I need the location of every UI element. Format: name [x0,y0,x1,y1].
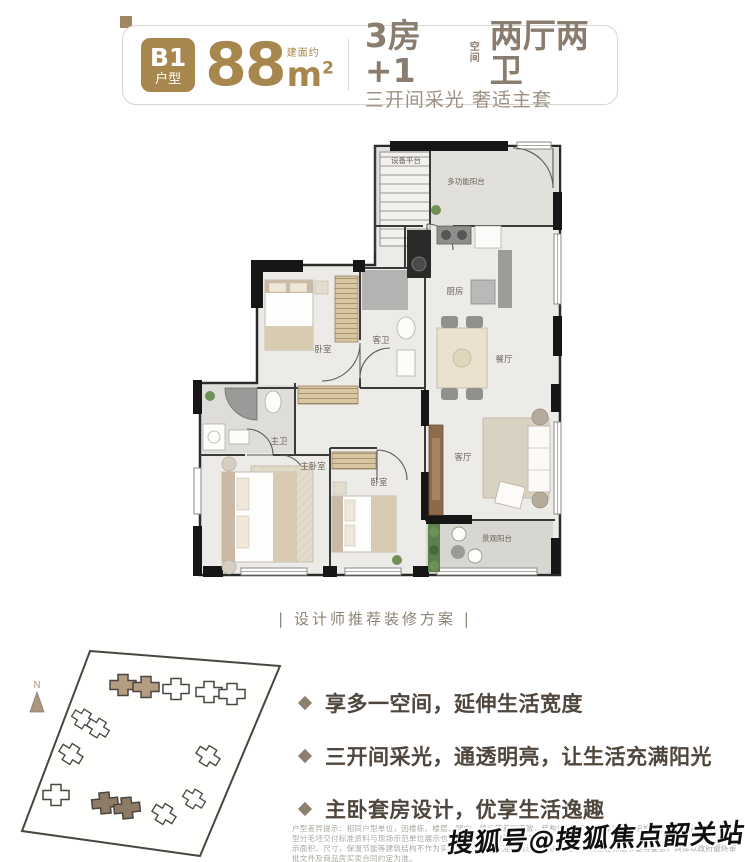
master-bedroom-furniture [222,457,313,574]
room-label-equipment: 设备平台 [391,155,421,165]
header-divider [348,39,349,91]
floor-plan-diagram: 设备平台 多功能阳台 厨房 客卫 卧室 餐厅 主卫 主卧室 卧室 客厅 景观阳台 [185,138,665,618]
selling-point-text: 享多一空间，延伸生活宽度 [325,688,583,718]
guest-shower [362,270,408,310]
room-label-kitchen: 厨房 [446,286,463,297]
headline: 3房+1 空 间 两厅两卫 [365,19,617,88]
room-label-bedroom-top: 卧室 [314,344,332,355]
dining-furniture [437,316,487,400]
plan-caption: | 设计师推荐装修方案 | [185,608,565,629]
unit-type-code: B1 [150,45,186,70]
hall-cabinet [298,386,358,404]
header-text-block: 3房+1 空 间 两厅两卫 三开间采光 奢适主套 [365,19,617,111]
north-arrow: N [30,680,44,712]
headline-stack: 空 间 [470,43,480,64]
room-label-dining: 餐厅 [495,355,513,365]
area-number: 88 [205,40,285,91]
room-label-guest-bath: 客卫 [372,335,390,346]
room-label-master-bath: 主卫 [270,436,288,447]
view-balcony-floor [426,521,553,573]
diamond-bullet-icon [298,749,312,763]
unit-type-label: 户型 [155,73,181,86]
room-label-multi-balcony: 多功能阳台 [447,176,485,186]
area-group: 88 建面约 m2 [205,40,334,91]
selling-point-1: 享多一空间，延伸生活宽度 [300,688,735,718]
area-unit-column: 建面约 m2 [287,50,334,90]
area-unit: m2 [287,60,334,91]
diamond-bullet-icon [298,696,312,710]
room-label-living: 客厅 [454,452,472,463]
selling-point-text: 三开间采光，通透明亮，让生活充满阳光 [325,741,712,771]
site-plan: N [15,648,295,860]
unit-type-badge: B1 户型 [141,38,195,92]
subheadline: 三开间采光 奢适主套 [365,91,617,111]
diamond-bullet-icon [298,802,312,816]
selling-point-2: 三开间采光，通透明亮，让生活充满阳光 [300,741,735,771]
north-label: N [33,680,40,691]
headline-main: 3房+1 [365,19,468,88]
area-superscript: 2 [322,59,334,79]
room-label-master-bedroom: 主卧室 [300,461,326,472]
room-label-bedroom2: 卧室 [370,477,388,488]
header-card: B1 户型 88 建面约 m2 3房+1 空 间 两厅两卫 三开间采光 奢适主套 [122,25,618,105]
headline-rest: 两厅两卫 [490,19,617,88]
room-label-view-balcony: 景观阳台 [482,533,512,543]
flyer-page: B1 户型 88 建面约 m2 3房+1 空 间 两厅两卫 三开间采光 奢适主套 [0,0,745,862]
bedroom-top-furniture [265,276,358,350]
